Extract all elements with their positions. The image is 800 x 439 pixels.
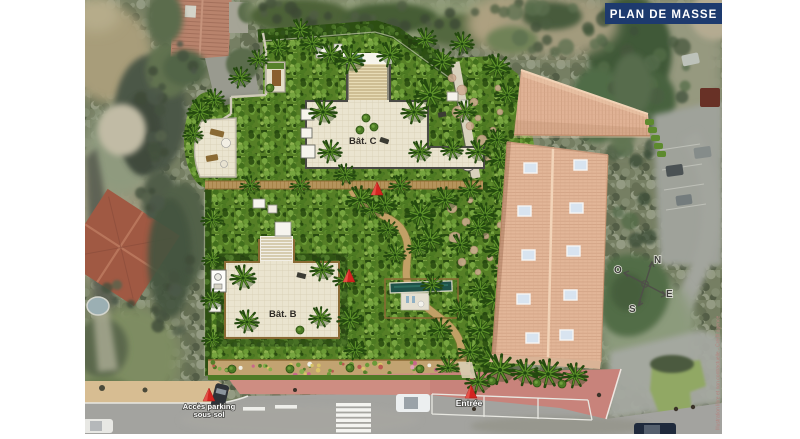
svg-text:S: S — [629, 304, 636, 315]
svg-text:Bât. B: Bât. B — [269, 309, 297, 320]
svg-text:sous-sol: sous-sol — [194, 410, 225, 419]
svg-text:PLAN DE MASSE: PLAN DE MASSE — [610, 9, 718, 21]
svg-text:N: N — [654, 255, 661, 266]
svg-text:O: O — [614, 265, 622, 276]
svg-text:Illustration libre et non cont: Illustration libre et non contractuelle … — [716, 316, 722, 430]
svg-text:Entrée: Entrée — [456, 398, 483, 408]
svg-text:Bât. C: Bât. C — [349, 136, 377, 147]
svg-text:E: E — [666, 289, 673, 300]
